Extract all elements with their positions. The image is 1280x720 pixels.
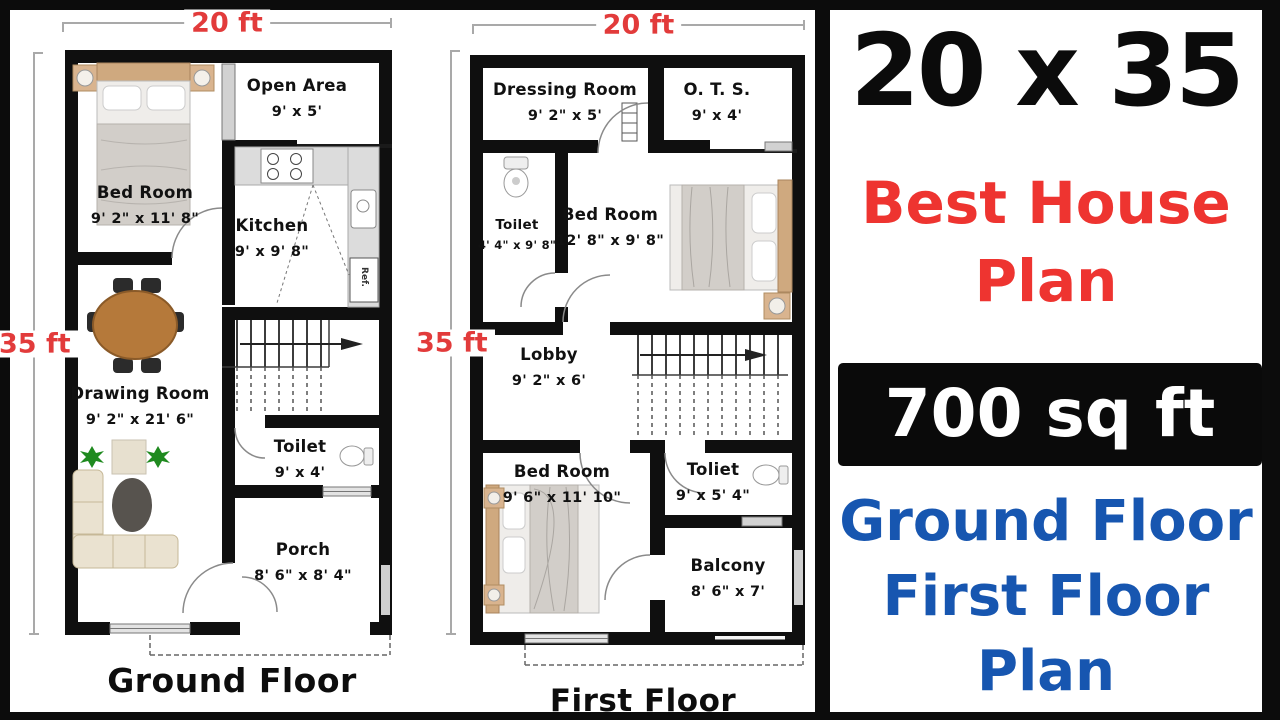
gf-title: Ground Floor bbox=[107, 661, 357, 700]
headline-line-2: Plan bbox=[830, 242, 1262, 320]
fridge-label: Ref. bbox=[359, 267, 369, 287]
room-label-gf-open-area: Open Area 9' x 5' bbox=[247, 76, 347, 121]
rug-icon bbox=[112, 478, 152, 532]
gf-dining-table bbox=[87, 278, 184, 373]
room-label-gf-kitchen: Kitchen 9' x 9' 8" bbox=[235, 216, 309, 261]
room-label-ff-dressing-room: Dressing Room 9' 2" x 5' bbox=[493, 80, 637, 125]
ff-balcony-outline bbox=[525, 645, 803, 665]
dimension-tick bbox=[803, 20, 805, 30]
dimension-tick bbox=[33, 52, 43, 54]
room-label-gf-drawing-room: Drawing Room 9' 2" x 21' 6" bbox=[70, 384, 209, 429]
ff-width-dimension: 20 ft bbox=[472, 24, 805, 26]
plant-icon bbox=[146, 446, 170, 468]
plot-size-headline: 20 x 35 bbox=[830, 16, 1262, 126]
dimension-tick bbox=[446, 633, 456, 635]
gf-depth-label: 35 ft bbox=[0, 330, 78, 357]
dimension-tick bbox=[390, 18, 392, 28]
gf-sofa bbox=[73, 440, 178, 568]
gf-toilet-icon bbox=[340, 446, 373, 466]
ff-toilet-icon bbox=[504, 157, 528, 197]
room-label-gf-toilet: Toilet 9' x 4' bbox=[274, 437, 327, 482]
gf-width-dimension: 20 ft bbox=[62, 22, 392, 24]
room-label-ff-balcony: Balcony 8' 6" x 7' bbox=[690, 556, 765, 601]
room-label-ff-bedroom-2: Bed Room 9' 6" x 11' 10" bbox=[503, 462, 622, 507]
ff-stairs-icon bbox=[632, 335, 788, 438]
room-label-ff-toliet: Toliet 9' x 5' 4" bbox=[676, 460, 750, 505]
best-house-plan-headline: Best House Plan bbox=[830, 164, 1262, 320]
gf-width-label: 20 ft bbox=[184, 10, 270, 37]
ff-toliet-icon bbox=[753, 465, 788, 485]
room-label-ff-toilet: Toilet 4' 4" x 9' 8" bbox=[478, 217, 556, 252]
area-badge: 700 sq ft bbox=[838, 363, 1262, 466]
gf-porch-outline bbox=[150, 635, 390, 655]
gf-stairs-icon bbox=[222, 320, 363, 415]
ff-depth-label: 35 ft bbox=[409, 329, 495, 356]
plant-icon bbox=[80, 446, 104, 468]
dimension-tick bbox=[62, 22, 64, 32]
room-label-ff-ots: O. T. S. 9' x 4' bbox=[684, 80, 751, 125]
sink-icon bbox=[351, 190, 376, 228]
ff-bed-1 bbox=[670, 180, 792, 319]
headline-line-1: Best House bbox=[830, 164, 1262, 242]
ff-width-label: 20 ft bbox=[596, 12, 682, 39]
caption-line-1: Ground Floor bbox=[830, 484, 1262, 559]
thumbnail-canvas: 20 ft 35 ft 20 ft 35 ft Bed Room 9' 2" x… bbox=[0, 0, 1280, 720]
floor-plan-caption: Ground Floor First Floor Plan bbox=[830, 484, 1262, 709]
caption-line-2: First Floor bbox=[830, 559, 1262, 634]
dimension-tick bbox=[450, 50, 460, 52]
caption-line-3: Plan bbox=[830, 634, 1262, 709]
dimension-tick bbox=[29, 633, 39, 635]
room-label-gf-porch: Porch 8' 6" x 8' 4" bbox=[254, 540, 352, 585]
room-label-gf-bedroom: Bed Room 9' 2" x 11' 8" bbox=[91, 183, 199, 228]
ff-title: First Floor bbox=[550, 683, 736, 719]
room-label-ff-bedroom-1: Bed Room 12' 8" x 9' 8" bbox=[556, 205, 664, 250]
gf-depth-dimension: 35 ft bbox=[33, 52, 35, 635]
ff-depth-dimension: 35 ft bbox=[450, 50, 452, 635]
dimension-tick bbox=[472, 24, 474, 34]
room-label-ff-lobby: Lobby 9' 2" x 6' bbox=[512, 345, 586, 390]
